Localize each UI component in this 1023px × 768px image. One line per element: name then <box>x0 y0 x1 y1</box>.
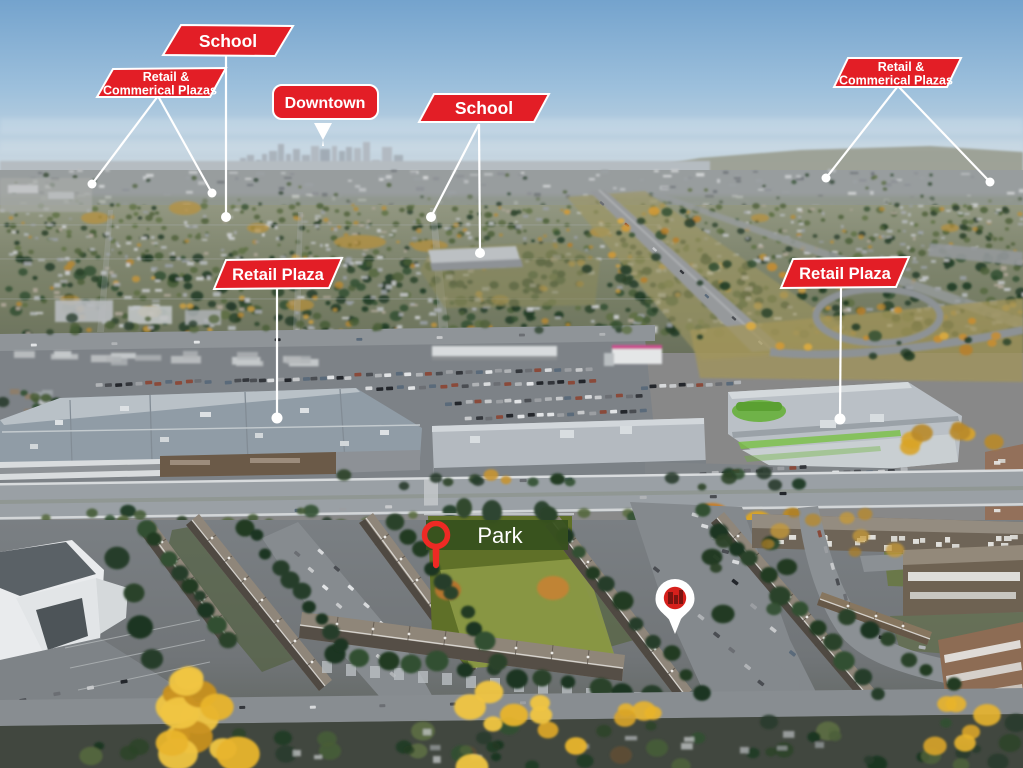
svg-text:Retail Plaza: Retail Plaza <box>799 265 892 283</box>
svg-text:School: School <box>455 98 513 118</box>
svg-text:Commerical Plazas: Commerical Plazas <box>103 84 217 98</box>
svg-text:Park: Park <box>477 523 523 548</box>
svg-text:Retail &: Retail & <box>143 70 190 84</box>
svg-text:Retail Plaza: Retail Plaza <box>232 266 325 284</box>
svg-text:Downtown: Downtown <box>285 95 366 112</box>
svg-text:Commerical Plazas: Commerical Plazas <box>839 74 953 88</box>
svg-text:School: School <box>199 31 257 51</box>
svg-text:Retail &: Retail & <box>878 60 925 74</box>
